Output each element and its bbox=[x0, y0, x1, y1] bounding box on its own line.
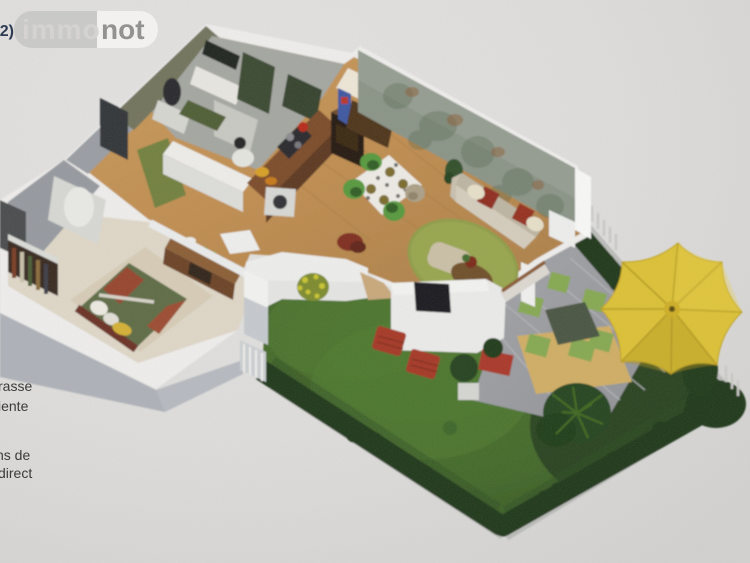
svg-text:direct: direct bbox=[0, 465, 32, 481]
svg-text:immo: immo bbox=[22, 14, 101, 45]
svg-text:not: not bbox=[101, 14, 145, 45]
svg-text:ns de: ns de bbox=[0, 447, 30, 463]
svg-text:rasse: rasse bbox=[0, 378, 32, 394]
svg-text:iente: iente bbox=[0, 398, 29, 414]
svg-text:T2): T2) bbox=[0, 23, 14, 40]
